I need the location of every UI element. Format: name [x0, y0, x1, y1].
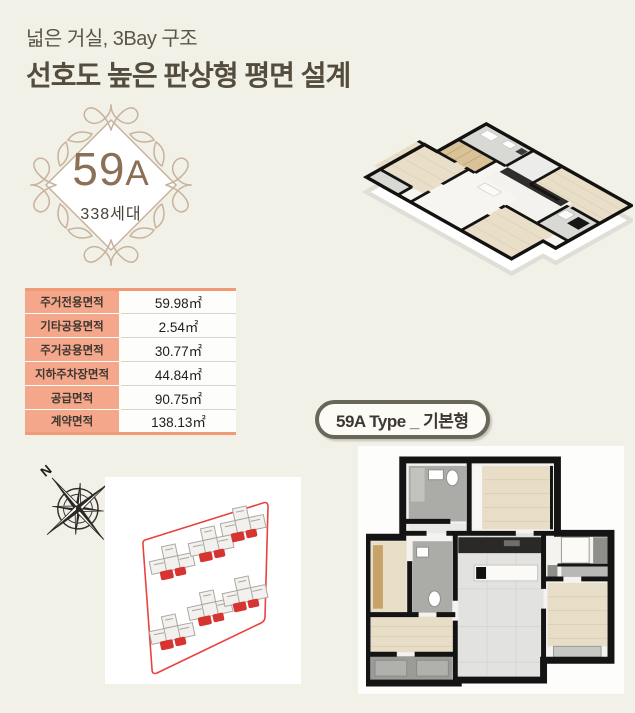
area-label-cell: 공급면적 [25, 386, 120, 410]
area-value-cell: 138.13㎡ [120, 410, 236, 434]
area-value-cell: 44.84㎡ [120, 362, 236, 386]
kitchen-counter [458, 537, 543, 553]
floor-plan-2d-drawing [366, 450, 616, 688]
area-value-cell: 59.98㎡ [120, 290, 236, 314]
unit-type-label: 59A [72, 146, 150, 192]
area-spec-table: 주거전용면적 59.98㎡ 기타공용면적 2.54㎡ 주거공용면적 30.77㎡… [25, 288, 236, 435]
household-count: 338세대 [80, 200, 141, 224]
area-label-cell: 주거공용면적 [25, 338, 120, 362]
room-utility [561, 565, 607, 577]
area-label-cell: 계약면적 [25, 410, 120, 434]
room-master-bedroom [548, 583, 608, 646]
area-label-cell: 기타공용면적 [25, 314, 120, 338]
header-subtitle: 넓은 거실, 3Bay 구조 [26, 22, 350, 51]
area-label-cell: 지하주차장면적 [25, 362, 120, 386]
floor-plan-2d-view [358, 446, 624, 694]
table-row: 계약면적 138.13㎡ [25, 410, 236, 434]
unit-letter: A [125, 154, 149, 193]
unit-number: 59 [72, 143, 125, 195]
unit-badge: 59A 338세대 [26, 100, 196, 270]
room-bedroom1 [371, 617, 452, 653]
brochure-page: 넓은 거실, 3Bay 구조 선호도 높은 판상형 평면 설계 [0, 0, 635, 713]
area-value-cell: 90.75㎡ [120, 386, 236, 410]
floor-plan-3d-drawing [278, 100, 633, 305]
table-row: 공급면적 90.75㎡ [25, 386, 236, 410]
room-living [458, 533, 543, 680]
type-label-badge: 59A Type _ 기본형 [315, 400, 490, 439]
area-value-cell: 2.54㎡ [120, 314, 236, 338]
table-row: 주거공용면적 30.77㎡ [25, 338, 236, 362]
room-bedroom2 [472, 466, 551, 529]
floor-plan-3d-view [278, 100, 633, 305]
compass-north-label: N [38, 462, 55, 480]
site-plan-sketch [105, 477, 301, 684]
site-plan-drawing [105, 477, 301, 684]
header: 넓은 거실, 3Bay 구조 선호도 높은 판상형 평면 설계 [26, 22, 350, 94]
area-label-cell: 주거전용면적 [25, 290, 120, 314]
table-row: 주거전용면적 59.98㎡ [25, 290, 236, 314]
badge-text: 59A 338세대 [26, 100, 196, 270]
table-row: 지하주차장면적 44.84㎡ [25, 362, 236, 386]
utility-box [561, 537, 589, 563]
page-title: 선호도 높은 판상형 평면 설계 [26, 54, 350, 94]
table-row: 기타공용면적 2.54㎡ [25, 314, 236, 338]
balcony-master [553, 646, 601, 657]
area-value-cell: 30.77㎡ [120, 338, 236, 362]
